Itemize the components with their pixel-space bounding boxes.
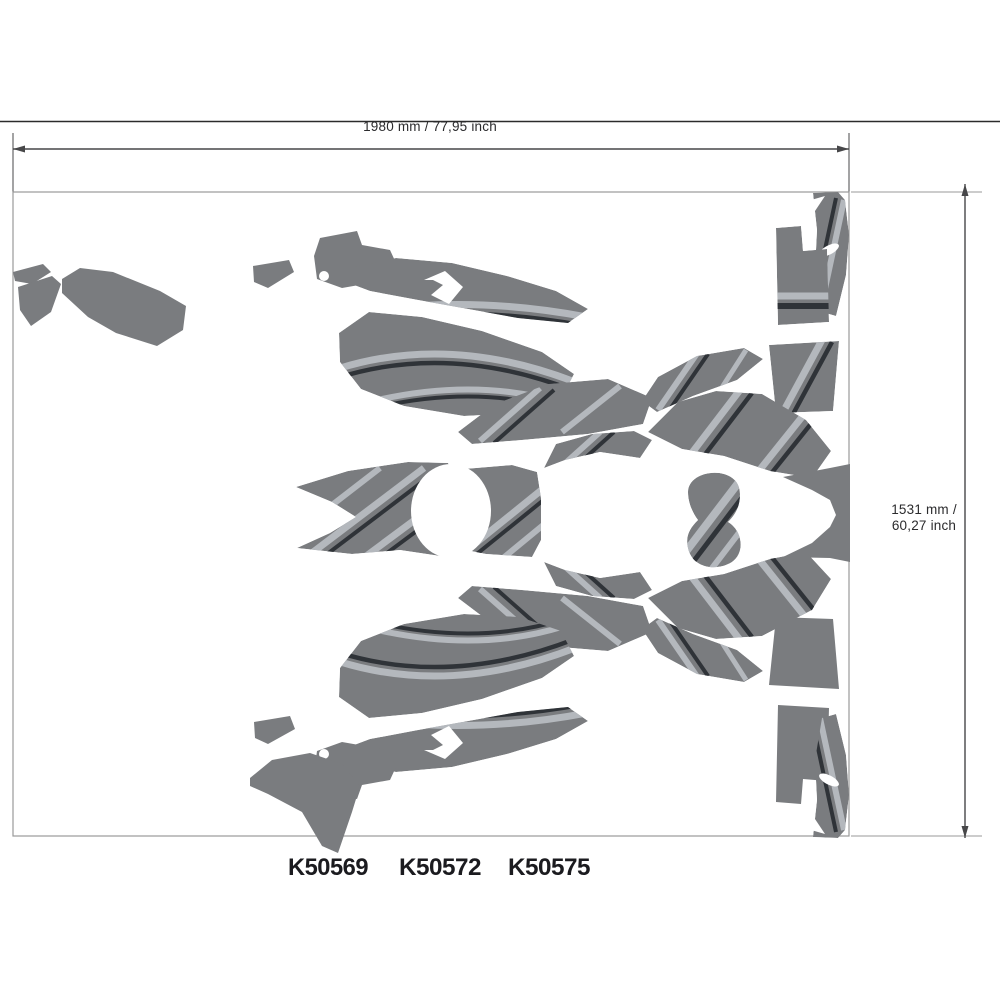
arrow-right-icon xyxy=(837,146,849,153)
part-number-1: K50569 xyxy=(288,854,368,881)
arrow-left-icon xyxy=(13,146,25,153)
part-number-3: K50575 xyxy=(508,854,590,881)
decal-kit-diagram: 1980 mm / 77,95 inch 1531 mm / 60,27 inc… xyxy=(0,0,1000,1000)
decal-piece-bottomright-trapezoid xyxy=(769,617,839,689)
cutout-hole-top xyxy=(319,271,329,281)
height-dimension-label-line2: 60,27 inch xyxy=(892,518,956,533)
diagram-canvas: 1980 mm / 77,95 inch 1531 mm / 60,27 inc… xyxy=(0,0,1000,1000)
part-number-2: K50572 xyxy=(399,854,481,881)
arrow-up-icon xyxy=(962,184,969,196)
height-dimension-label-line1: 1531 mm / xyxy=(891,502,957,517)
width-dimension-label: 1980 mm / 77,95 inch xyxy=(363,119,497,134)
